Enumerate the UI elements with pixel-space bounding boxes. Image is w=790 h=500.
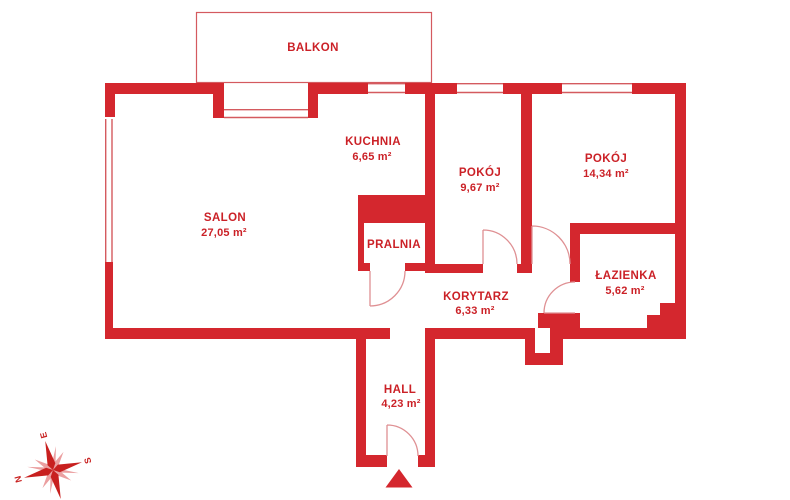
label-pokoj-maly: POKÓJ	[459, 166, 501, 179]
compass-letter-e: E	[38, 431, 49, 439]
wall-segment	[405, 263, 435, 271]
wall-segment	[418, 455, 435, 467]
wall-segment	[503, 83, 562, 94]
doors	[370, 226, 575, 456]
wall-segment	[570, 223, 580, 282]
pralnia-block	[358, 195, 425, 223]
wall-segment	[358, 195, 364, 263]
label-lazienka: ŁAZIENKA	[595, 270, 656, 282]
wall-segment	[308, 83, 368, 94]
label-balkon: BALKON	[287, 42, 339, 54]
door-arc-pralnia	[370, 271, 405, 306]
wall-segment	[105, 328, 390, 339]
wall-segment	[105, 83, 115, 117]
area-hall: 4,23 m²	[381, 398, 420, 410]
wall-segment	[570, 223, 686, 234]
compass-major-points	[16, 433, 89, 500]
wall-segment	[425, 83, 435, 273]
shaft-wall	[550, 339, 563, 353]
wall-segment	[105, 262, 113, 339]
area-salon: 27,05 m²	[201, 227, 247, 239]
wall-segment	[356, 455, 387, 467]
label-korytarz: KORYTARZ	[443, 291, 509, 303]
door-arc-lazienka	[544, 282, 575, 313]
wall-segment	[550, 328, 686, 339]
wall-segment	[675, 83, 686, 339]
wall-segment	[521, 83, 532, 268]
area-kuchnia: 6,65 m²	[352, 151, 391, 163]
wall-segment	[356, 339, 366, 467]
wall-segment	[435, 264, 483, 273]
wall-segment	[425, 339, 435, 467]
label-hall: HALL	[384, 384, 416, 396]
floor-plan-page: BALKON KUCHNIA 6,65 m² POKÓJ 9,67 m² POK…	[0, 0, 790, 500]
door-arc-pokoj-duzy	[532, 226, 570, 264]
label-pokoj-duzy: POKÓJ	[585, 152, 627, 165]
area-lazienka: 5,62 m²	[605, 285, 644, 297]
wall-segment	[105, 83, 215, 94]
door-arc-entrance	[387, 425, 418, 456]
shaft-wall	[525, 353, 563, 365]
area-pokoj-maly: 9,67 m²	[460, 182, 499, 194]
compass-rose: N E S	[3, 422, 100, 500]
wall-segment	[425, 328, 535, 339]
door-arc-pokoj-maly	[483, 230, 517, 264]
compass-letter-s: S	[82, 456, 93, 464]
chimney-step	[647, 315, 686, 328]
wall-segment	[538, 313, 580, 328]
wall-segment	[517, 264, 532, 273]
area-pokoj-duzy: 14,34 m²	[583, 168, 629, 180]
area-korytarz: 6,33 m²	[455, 305, 494, 317]
floor-plan-drawing: BALKON KUCHNIA 6,65 m² POKÓJ 9,67 m² POK…	[0, 0, 790, 500]
wall-segment	[213, 83, 224, 118]
windows	[106, 84, 632, 262]
label-pralnia: PRALNIA	[367, 239, 421, 251]
wall-segment	[358, 263, 370, 271]
compass-letter-n: N	[13, 475, 24, 484]
entrance-arrow	[386, 469, 413, 488]
label-kuchnia: KUCHNIA	[345, 136, 401, 148]
label-salon: SALON	[204, 212, 246, 224]
